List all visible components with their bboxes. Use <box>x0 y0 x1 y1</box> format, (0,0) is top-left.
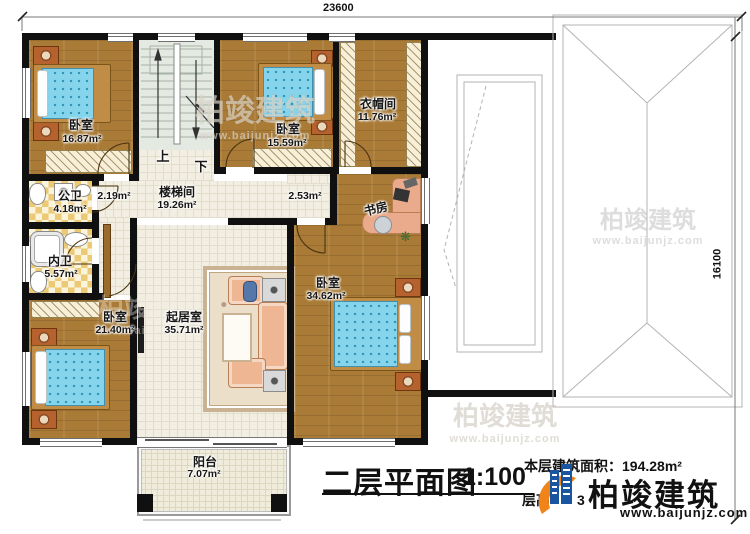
window <box>22 246 31 282</box>
sink-icon <box>64 232 88 247</box>
watermark: 柏竣建筑 www.baijunjz.com <box>593 200 704 247</box>
dimension-top: 23600 <box>323 2 354 14</box>
wardrobe <box>45 150 132 173</box>
roof-outline <box>444 15 742 407</box>
window <box>22 352 31 406</box>
wall-segment <box>22 438 40 445</box>
window <box>421 178 430 224</box>
plan-scale: 1:100 <box>462 463 526 492</box>
wardrobe <box>31 301 100 318</box>
watermark-name: 柏竣建筑 <box>600 207 696 234</box>
nightstand <box>395 372 421 391</box>
bed-mattress <box>42 68 94 119</box>
wardrobe <box>406 42 422 167</box>
wall-segment <box>129 174 139 181</box>
room-label: 衣帽间 <box>360 98 396 111</box>
wall-segment <box>92 181 99 186</box>
stair-up-label: 上 <box>156 150 169 164</box>
wall-segment <box>287 225 294 445</box>
wall-segment <box>228 218 287 225</box>
room-label: 卧室 <box>316 277 340 290</box>
side-table <box>263 370 286 392</box>
bed-mattress <box>45 349 105 406</box>
room-label: 公卫 <box>58 190 82 203</box>
stair-down-label: 下 <box>194 160 207 174</box>
bed-mattress <box>263 67 313 117</box>
bed-mattress <box>334 301 398 367</box>
nightstand <box>31 410 57 429</box>
wall-segment <box>133 40 139 181</box>
corridor-floor-top <box>287 174 330 184</box>
bed-pillow <box>399 335 411 364</box>
wall-segment <box>421 360 428 445</box>
room-area: 2.53m² <box>288 191 321 202</box>
room-area: 11.76m² <box>358 112 397 123</box>
nightstand <box>395 278 421 297</box>
floor-plan-canvas: ❋ <box>0 0 750 534</box>
room-label: 卧室 <box>276 123 300 136</box>
watermark-site: www.baijunjz.com <box>593 235 704 247</box>
room-area: 15.59m² <box>267 138 306 149</box>
wardrobe <box>252 148 332 168</box>
bed <box>33 64 111 123</box>
wall-segment <box>22 293 104 300</box>
watermark: 柏竣建筑 www.baijunjz.com <box>450 396 561 445</box>
wall-segment <box>214 167 226 174</box>
room-area: 16.87m² <box>62 134 101 145</box>
wall-segment <box>325 218 337 225</box>
window <box>22 68 31 118</box>
window <box>303 438 395 447</box>
toilet-icon <box>29 183 46 205</box>
watermark-name: 柏竣建筑 <box>453 401 557 431</box>
wall-segment <box>22 222 92 229</box>
wall-segment <box>307 33 329 40</box>
room-area: 19.26m² <box>157 200 196 211</box>
window <box>421 296 430 360</box>
room-area: 5.57m² <box>44 269 77 280</box>
tv-icon <box>138 307 144 353</box>
room-area: 4.18m² <box>53 204 86 215</box>
wall-segment <box>22 33 108 40</box>
dimension-right: 16100 <box>711 249 723 280</box>
sliding-door-panel <box>213 443 277 445</box>
sofa-chaise <box>228 358 266 388</box>
room-area: 2.19m² <box>97 191 130 202</box>
wall-segment <box>421 33 428 178</box>
side-table <box>262 278 286 302</box>
window <box>40 438 102 447</box>
room-label: 阳台 <box>193 456 217 469</box>
brand-site: www.baijunjz.com <box>620 505 748 520</box>
wall-segment <box>254 167 339 174</box>
room-label: 楼梯间 <box>159 186 195 199</box>
title-underline <box>322 493 534 495</box>
bed-pillow <box>314 69 325 115</box>
wall-segment <box>428 390 556 397</box>
nightstand <box>33 122 59 141</box>
window <box>108 33 133 42</box>
bed-pillow <box>35 351 47 404</box>
brand-logo-icon <box>538 462 580 524</box>
nightstand <box>33 46 59 65</box>
balcony-post <box>271 494 287 512</box>
wall-segment <box>92 210 99 238</box>
stairwell-floor <box>139 40 214 150</box>
plan-title: 二层平面图 <box>322 458 477 502</box>
room-area: 34.62m² <box>306 291 345 302</box>
person-figure <box>243 281 257 302</box>
wall-segment <box>421 224 428 296</box>
wall-segment <box>287 218 297 225</box>
room-label: 卧室 <box>103 311 127 324</box>
window <box>329 33 355 42</box>
wall-segment <box>195 33 243 40</box>
wall-segment <box>371 167 421 174</box>
door-leaf <box>103 224 111 298</box>
coffee-table <box>222 313 252 362</box>
window <box>243 33 307 42</box>
wall-segment <box>333 40 339 174</box>
wall-segment <box>133 33 158 40</box>
room-area: 7.07m² <box>187 469 220 480</box>
window <box>158 33 195 42</box>
wall-segment <box>22 33 29 68</box>
chair-icon <box>374 216 392 234</box>
bed <box>258 63 332 121</box>
watermark-site: www.baijunjz.com <box>450 433 561 445</box>
plant-icon: ❋ <box>400 230 414 244</box>
wardrobe <box>340 42 356 167</box>
wall-segment <box>330 174 337 218</box>
room-label: 卧室 <box>69 119 93 132</box>
wall-segment <box>214 40 220 174</box>
room-label: 起居室 <box>166 311 202 324</box>
bed-pillow <box>399 304 411 333</box>
bed <box>330 297 422 371</box>
room-area: 35.71m² <box>164 325 203 336</box>
sliding-door-panel <box>145 439 209 441</box>
balcony-post <box>137 494 153 512</box>
wall-segment <box>22 174 104 181</box>
bed <box>31 345 110 410</box>
room-label: 内卫 <box>48 255 72 268</box>
sliding-door <box>137 437 287 448</box>
wall-segment <box>355 33 556 40</box>
bed-pillow <box>37 70 48 117</box>
room-area: 21.40m² <box>95 325 134 336</box>
